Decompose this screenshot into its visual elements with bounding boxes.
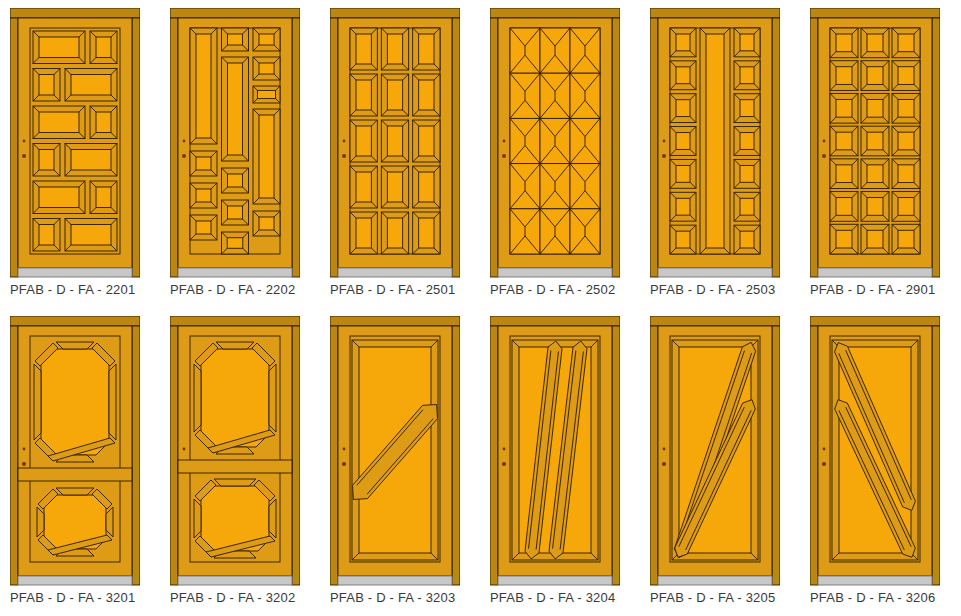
door-label: PFAB - D - FA - 3206 [810,590,960,605]
door-cell-5: PFAB - D - FA - 2503 [640,0,800,308]
door-cell-7: PFAB - D - FA - 3201 [0,308,160,616]
door-label: PFAB - D - FA - 3205 [650,590,800,605]
door-drawing [10,8,140,278]
door-drawing [330,8,460,278]
door-cell-8: PFAB - D - FA - 3202 [160,308,320,616]
door-drawing [810,8,940,278]
door-cell-12: PFAB - D - FA - 3206 [800,308,960,616]
door-drawing [10,316,140,586]
door-label: PFAB - D - FA - 2901 [810,282,960,297]
door-cell-4: PFAB - D - FA - 2502 [480,0,640,308]
door-cell-3: PFAB - D - FA - 2501 [320,0,480,308]
door-label: PFAB - D - FA - 3203 [330,590,480,605]
door-label: PFAB - D - FA - 3204 [490,590,640,605]
door-cell-9: PFAB - D - FA - 3203 [320,308,480,616]
door-cell-10: PFAB - D - FA - 3204 [480,308,640,616]
door-drawing [330,316,460,586]
door-label: PFAB - D - FA - 3201 [10,590,160,605]
door-cell-1: PFAB - D - FA - 2201 [0,0,160,308]
door-cell-6: PFAB - D - FA - 2901 [800,0,960,308]
door-label: PFAB - D - FA - 3202 [170,590,320,605]
door-label: PFAB - D - FA - 2201 [10,282,160,297]
door-drawing [810,316,940,586]
door-drawing [650,316,780,586]
door-label: PFAB - D - FA - 2502 [490,282,640,297]
door-drawing [170,316,300,586]
door-drawing [650,8,780,278]
door-drawing [490,316,620,586]
door-drawing [170,8,300,278]
door-drawing [490,8,620,278]
door-cell-2: PFAB - D - FA - 2202 [160,0,320,308]
door-cell-11: PFAB - D - FA - 3205 [640,308,800,616]
door-label: PFAB - D - FA - 2202 [170,282,320,297]
door-label: PFAB - D - FA - 2503 [650,282,800,297]
door-label: PFAB - D - FA - 2501 [330,282,480,297]
door-catalog-grid: PFAB - D - FA - 2201 PFAB - D - FA - 220… [0,0,961,616]
